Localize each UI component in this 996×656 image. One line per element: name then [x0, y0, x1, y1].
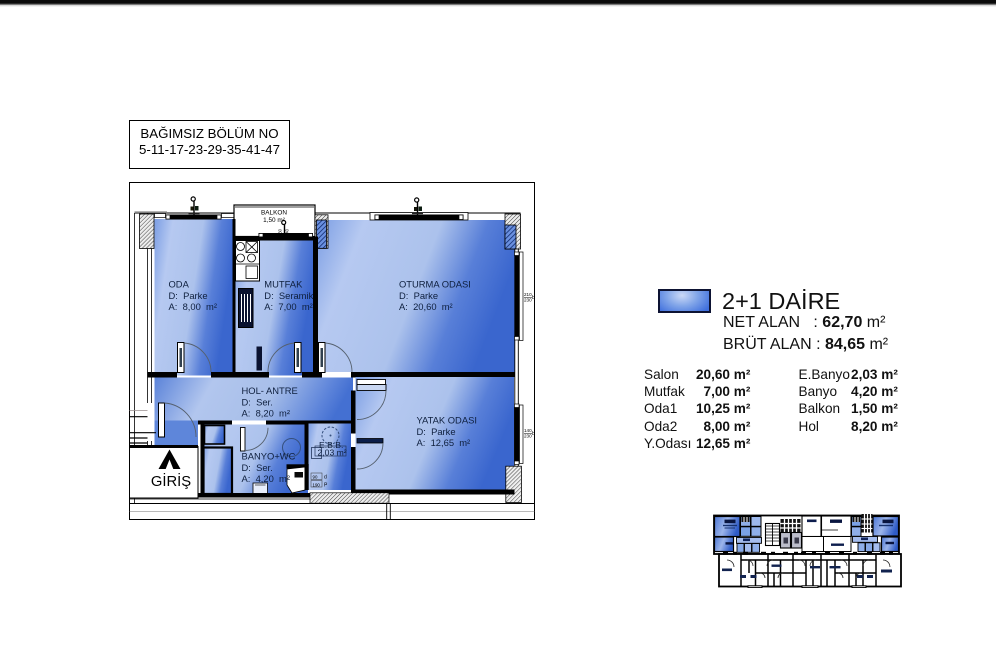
svg-text:D: Parke: D: Parke — [169, 290, 208, 301]
svg-text:BALKON: BALKON — [261, 210, 287, 217]
svg-text:230: 230 — [278, 228, 283, 236]
svg-text:D: Seramik: D: Seramik — [264, 290, 313, 301]
svg-text:A: 4,20 m²: A: 4,20 m² — [242, 473, 290, 484]
svg-text:b: b — [532, 431, 535, 437]
svg-text:GİRİŞ: GİRİŞ — [151, 472, 191, 490]
svg-text:b: b — [532, 295, 535, 301]
svg-text:ODA: ODA — [169, 279, 190, 290]
svg-text:YATAK ODASI: YATAK ODASI — [417, 415, 477, 426]
svg-text:A: 20,60 m²: A: 20,60 m² — [399, 301, 453, 312]
svg-text:BANYO+WC: BANYO+WC — [242, 451, 296, 462]
svg-text:210: 210 — [524, 292, 532, 297]
svg-text:D: Parke: D: Parke — [399, 290, 438, 301]
svg-text:2,03 m²: 2,03 m² — [318, 448, 347, 458]
svg-text:190: 190 — [313, 483, 321, 488]
svg-text:230: 230 — [524, 434, 532, 439]
svg-text:D: Parke: D: Parke — [417, 426, 456, 437]
svg-text:OTURMA ODASI: OTURMA ODASI — [399, 279, 471, 290]
svg-text:A: 8,00 m²: A: 8,00 m² — [169, 301, 217, 312]
svg-text:MUTFAK: MUTFAK — [264, 279, 303, 290]
svg-text:HOL- ANTRE: HOL- ANTRE — [242, 385, 298, 396]
svg-text:D: Ser.: D: Ser. — [242, 462, 273, 473]
svg-text:D: Ser.: D: Ser. — [242, 396, 273, 407]
svg-text:A: 12,65 m²: A: 12,65 m² — [417, 437, 471, 448]
svg-text:140: 140 — [524, 428, 532, 433]
svg-text:140: 140 — [285, 228, 290, 236]
svg-text:d: d — [324, 475, 327, 481]
svg-text:230: 230 — [524, 298, 532, 303]
svg-text:90: 90 — [313, 475, 318, 480]
svg-text:A: 8,20 m²: A: 8,20 m² — [242, 408, 290, 419]
svg-text:A: 7,00 m²: A: 7,00 m² — [264, 301, 312, 312]
